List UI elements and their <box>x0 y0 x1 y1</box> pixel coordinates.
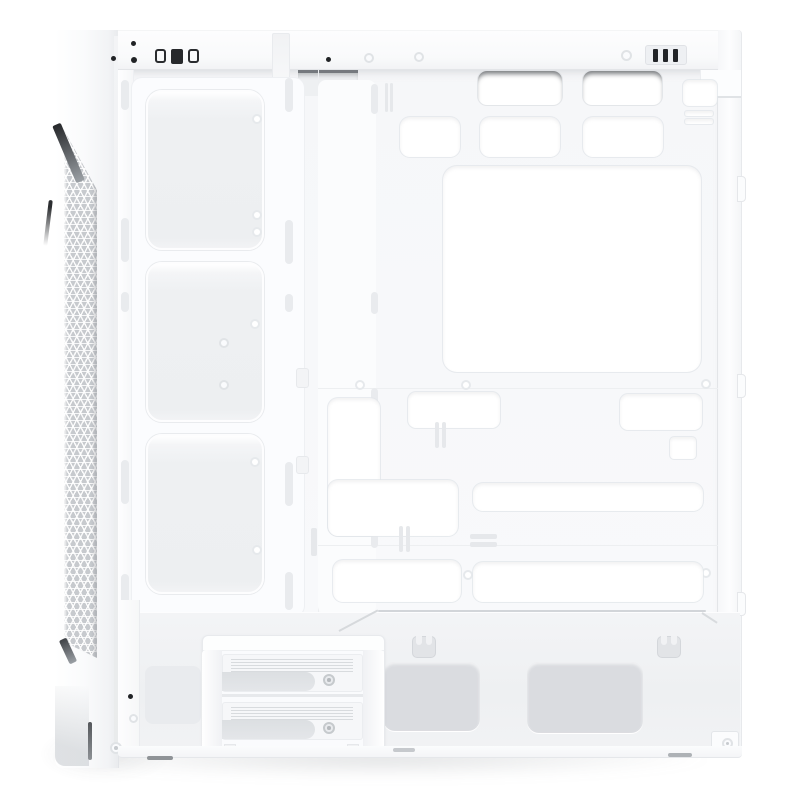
io-bracket-icon <box>155 49 166 63</box>
cable-cutout-long <box>473 483 703 511</box>
top-io-cutout-right <box>645 45 687 65</box>
tray-gap-line <box>222 694 363 697</box>
cable-tie-slot <box>385 83 388 112</box>
fan-screw-hole <box>252 459 258 465</box>
drive-tray <box>222 702 363 740</box>
chassis-screw <box>111 56 116 61</box>
cable-tie-slot <box>435 422 439 448</box>
bottom-strip <box>118 746 742 758</box>
cage-column-right <box>363 650 384 750</box>
fan-screw-hole <box>254 229 260 235</box>
cable-clip <box>657 636 681 658</box>
tray-vent-lines <box>231 659 353 672</box>
fan-screw-hole <box>252 321 258 327</box>
fan-screw-hole <box>254 116 260 122</box>
side-panel-tab <box>737 176 746 202</box>
drive-tray <box>222 654 363 692</box>
rear-vent-slot <box>685 111 713 116</box>
tray-thumbscrew <box>323 674 335 686</box>
cable-cutout <box>333 560 461 602</box>
top-io-cutout-left <box>155 47 201 65</box>
top-screw-hole <box>414 52 424 62</box>
tray-handle-recess <box>222 672 315 691</box>
cable-tie-slot <box>399 526 403 552</box>
cable-cutout <box>480 117 560 157</box>
fan-mount-slot <box>285 220 293 264</box>
fan-mount-slot <box>121 218 129 262</box>
cable-cutout <box>408 392 500 428</box>
front-mesh-strip <box>64 126 97 660</box>
fan-screw-hole <box>254 212 260 218</box>
cable-cutout <box>670 437 696 459</box>
bracket-clip-tab <box>296 368 309 388</box>
cable-tie-slot <box>442 422 446 448</box>
fan-mount-slot <box>121 80 129 110</box>
chassis-screw <box>326 57 331 62</box>
cable-clip <box>412 636 436 658</box>
channel-slot <box>371 84 378 114</box>
chassis-screw <box>131 57 137 63</box>
io-connector-block <box>171 49 183 64</box>
rear-interior-line <box>717 70 718 616</box>
side-panel-tab <box>737 374 746 398</box>
cpu-cooler-cutout <box>443 166 701 372</box>
top-screw-hole <box>621 50 632 61</box>
cable-cutout <box>583 117 663 157</box>
cable-cutout <box>400 117 460 157</box>
cable-tie-slot <box>470 534 497 539</box>
cable-cutout <box>473 562 703 602</box>
front-screw-hole <box>129 714 138 723</box>
io-pin-bar <box>653 49 658 62</box>
fan-mount-slot <box>285 294 293 312</box>
io-bracket-icon <box>188 49 199 63</box>
cage-side-recess <box>145 666 201 724</box>
tray-vent-lines <box>231 707 353 720</box>
psu-vent <box>383 662 480 731</box>
cable-grommet <box>478 71 562 105</box>
standoff-hole <box>463 382 469 388</box>
cage-column-left <box>202 650 222 750</box>
front-bottom-shade <box>55 686 89 766</box>
pc-case-photo <box>0 0 800 800</box>
cable-tie-slot <box>406 526 410 552</box>
cable-cutout <box>620 394 702 430</box>
bracket-ring-hole <box>219 338 229 348</box>
bracket-ring-hole <box>219 380 229 390</box>
foot-mark <box>147 756 173 760</box>
fan-mount-slot <box>121 460 129 504</box>
bracket-clip-tab <box>296 456 309 474</box>
cable-cutout-l-shape <box>328 480 458 536</box>
rear-vent-slot <box>685 119 713 124</box>
foot-mark <box>393 748 415 752</box>
cage-top-face <box>203 636 384 651</box>
io-pin-bar <box>673 49 678 62</box>
front-foot-dark <box>88 722 92 760</box>
fan-mount-slot <box>285 462 293 506</box>
fan-mount-slot <box>285 572 293 610</box>
psu-vent <box>527 662 643 733</box>
tray-seam-horizontal <box>318 545 718 546</box>
channel-slot <box>371 292 378 314</box>
tray-seam-horizontal <box>318 388 718 389</box>
foot-mark <box>668 753 692 757</box>
tray-thumbscrew <box>323 722 335 734</box>
standoff-hole <box>703 570 709 576</box>
rear-top-cutout <box>683 80 717 106</box>
top-screw-hole <box>364 53 374 63</box>
shroud-edge-line <box>378 610 706 612</box>
io-pin-bar <box>663 49 668 62</box>
tray-handle-recess <box>222 720 315 739</box>
front-bottom-edge <box>118 600 140 748</box>
cable-tie-slot <box>311 528 317 556</box>
front-io-screw <box>128 694 133 699</box>
chassis-screw <box>131 41 136 46</box>
cable-tie-slot <box>470 542 497 547</box>
cable-tie-slot <box>390 83 393 112</box>
fan-screw-hole <box>254 547 260 553</box>
standoff-hole <box>703 381 709 387</box>
standoff-hole <box>357 382 363 388</box>
fan-mount-slot <box>285 78 293 112</box>
fan-bay-recess <box>146 434 264 594</box>
cable-grommet <box>583 71 662 105</box>
fan-bay-recess <box>146 90 264 250</box>
fan-mount-slot <box>121 292 129 312</box>
standoff-hole <box>465 572 471 578</box>
front-edge-accent <box>43 200 53 246</box>
fan-bay-recess <box>146 262 264 422</box>
